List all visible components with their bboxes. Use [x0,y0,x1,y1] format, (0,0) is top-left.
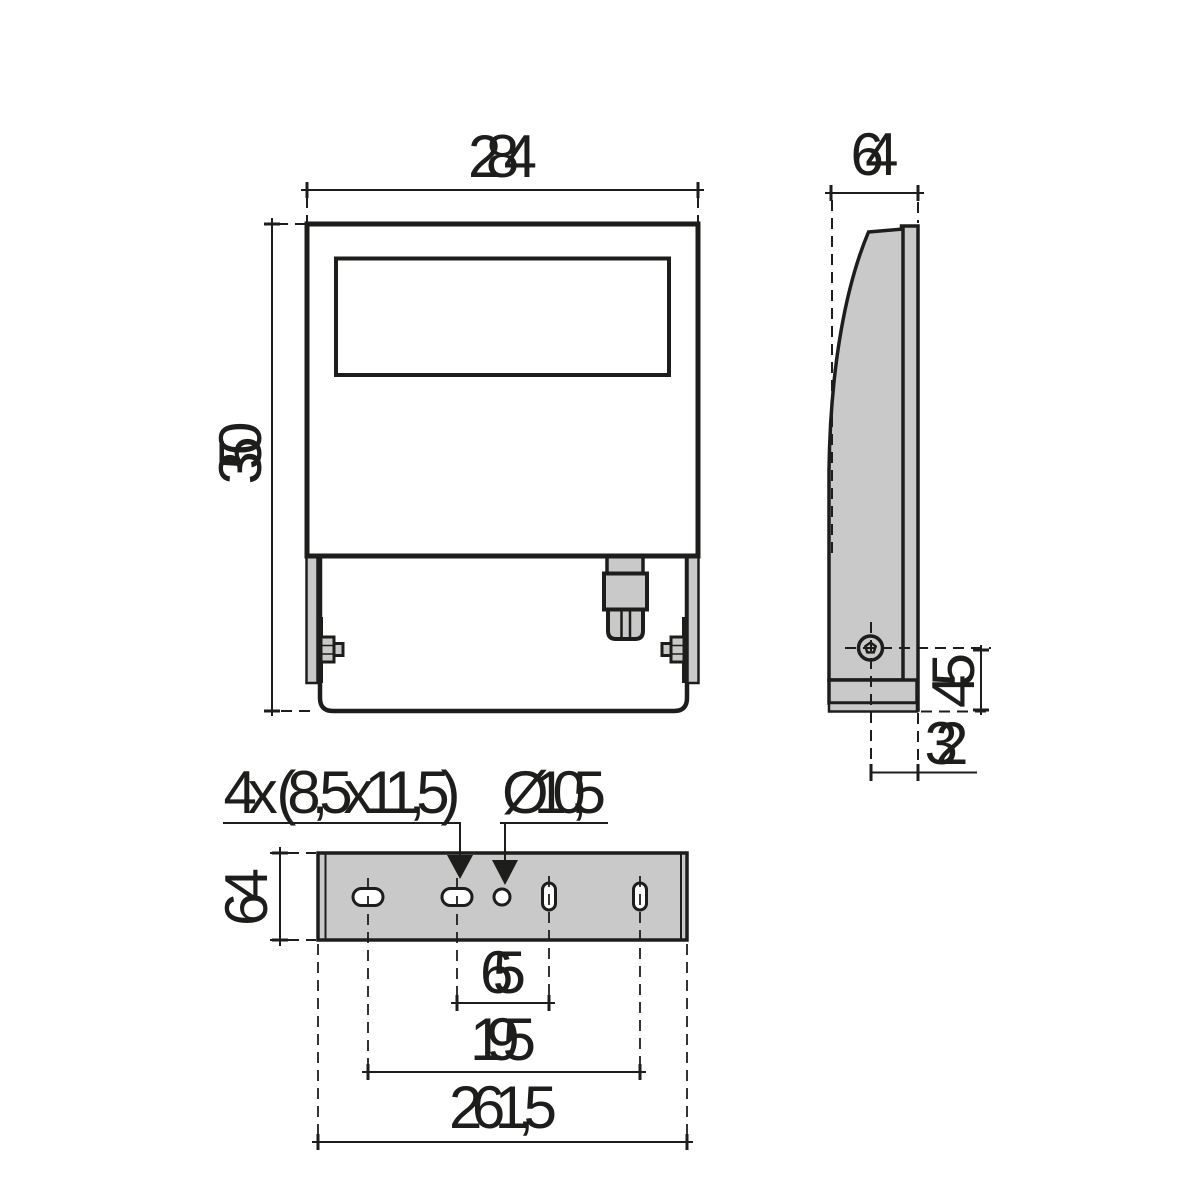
front-right-flange [688,556,699,683]
dimension-front-width: 284 [301,123,704,225]
technical-drawing: 284 350 64 45 3 [0,0,1200,1200]
side-base-strip [829,703,917,712]
front-cable-gland [604,557,647,640]
technical-drawing-canvas: 284 350 64 45 3 [0,0,1200,1200]
dimension-side-depth: 64 [825,121,924,201]
dim-label-side-bolt-offset: 32 [925,710,969,777]
dim-label-front-width: 284 [468,123,537,190]
dimension-side-bolt-offset: 32 [871,710,977,781]
cable-gland-nut [608,610,643,640]
label-hole-note: Ø10,5 [502,759,606,826]
dimension-bottom-pitch-outer: 261,5 [312,1074,693,1150]
dim-label-pitch-mid: 195 [470,1006,536,1073]
bottom-hole-circle [494,889,510,905]
cable-gland-neck [607,557,643,574]
dim-label-bottom-depth: 64 [213,868,280,926]
dim-label-side-depth: 64 [851,121,899,188]
dimension-front-height: 350 [207,218,317,716]
cable-gland-body [604,574,647,610]
front-lens-window [336,259,669,376]
dimension-side-bolt-height: 45 [920,645,989,715]
dim-label-pitch-outer: 261,5 [449,1074,557,1141]
dimension-bottom-depth: 64 [213,847,316,946]
dim-label-front-height: 350 [207,422,274,485]
side-housing-profile [829,229,903,680]
side-base [829,680,917,703]
front-view [307,224,699,711]
label-slots-note: 4x (8,5x11,5) [224,759,461,826]
front-left-flange [307,556,318,683]
dimension-bottom-pitch-mid: 195 [362,1006,646,1080]
dim-label-side-bolt-height: 45 [920,653,987,708]
dimension-bottom-pitch-inner: 65 [451,939,555,1011]
dim-label-pitch-inner: 65 [480,939,526,1006]
